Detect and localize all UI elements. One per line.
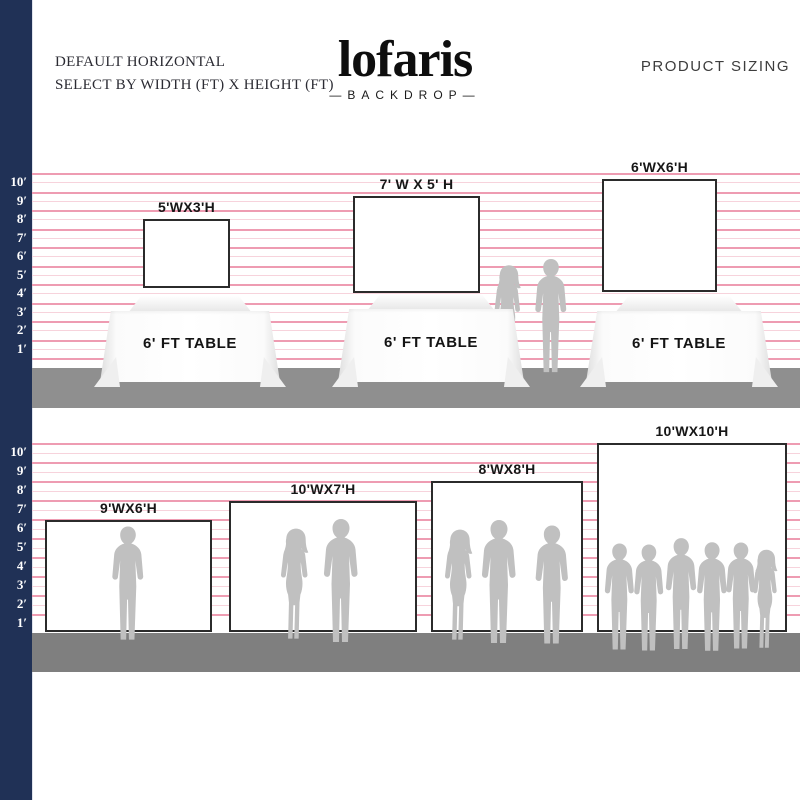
table-label: 6' FT TABLE	[338, 334, 524, 351]
scale-label: 9′	[0, 464, 27, 477]
logo-wordmark: lofaris	[300, 34, 510, 86]
table-label: 6' FT TABLE	[100, 335, 280, 352]
backdrop-size-label: 6'WX6'H	[602, 159, 717, 175]
scale-label: 10′	[0, 445, 27, 458]
three-people-silhouette	[438, 512, 578, 650]
scale-label: 2′	[0, 323, 27, 336]
table-label: 6' FT TABLE	[586, 335, 772, 352]
left-ruler-bar	[0, 0, 33, 800]
scale-label: 8′	[0, 212, 27, 225]
scale-label: 4′	[0, 286, 27, 299]
scale-label: 1′	[0, 616, 27, 629]
product-sizing-chart: DEFAULT HORIZONTAL SELECT BY WIDTH (FT) …	[0, 0, 800, 800]
table-top-surface	[616, 296, 743, 312]
scale-label: 6′	[0, 521, 27, 534]
backdrop-size-label: 5'WX3'H	[123, 199, 250, 215]
scale-label: 3′	[0, 578, 27, 591]
scale-label: 8′	[0, 483, 27, 496]
scale-label: 1′	[0, 342, 27, 355]
scale-label: 3′	[0, 305, 27, 318]
table-6ft: 6' FT TABLE	[100, 296, 280, 384]
table-top-surface	[368, 294, 495, 310]
scale-label: 9′	[0, 194, 27, 207]
scale-label: 4′	[0, 559, 27, 572]
scale-label: 10′	[0, 175, 27, 188]
scale-label: 6′	[0, 249, 27, 262]
scale-label: 2′	[0, 597, 27, 610]
brand-logo: lofaris —BACKDROP—	[300, 34, 510, 102]
scale-label: 5′	[0, 268, 27, 281]
backdrop-6x6	[602, 179, 717, 292]
backdrop-7x5	[353, 196, 480, 293]
table-top-surface	[129, 296, 251, 312]
single-man-silhouette	[102, 523, 154, 644]
backdrop-5x3	[143, 219, 230, 288]
scale-label: 5′	[0, 540, 27, 553]
group-of-six-silhouette	[598, 527, 788, 663]
backdrop-size-label: 8'WX8'H	[431, 461, 583, 477]
page-title: PRODUCT SIZING	[640, 58, 790, 75]
table-6ft: 6' FT TABLE	[586, 296, 772, 384]
backdrop-size-label: 10'WX7'H	[229, 481, 417, 497]
scale-label: 7′	[0, 231, 27, 244]
backdrop-size-label: 7' W X 5' H	[353, 176, 480, 192]
table-6ft: 6' FT TABLE	[338, 294, 524, 384]
scale-label: 7′	[0, 502, 27, 515]
backdrop-size-label: 10'WX10'H	[597, 423, 787, 439]
logo-subtitle: —BACKDROP—	[300, 88, 510, 102]
backdrop-size-label: 9'WX6'H	[45, 500, 212, 516]
couple-silhouette	[268, 514, 372, 648]
